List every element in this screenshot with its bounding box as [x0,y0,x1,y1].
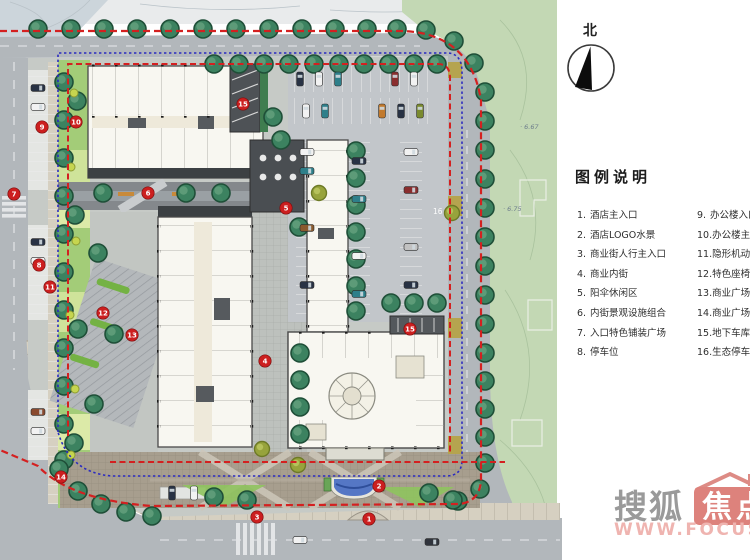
legend-item: 5.阳伞休闲区 [577,284,666,304]
legend-item: 7.入口特色铺装广场 [577,324,666,344]
svg-text:9: 9 [40,124,45,132]
legend-item: 10.办公楼主 [697,226,750,246]
watermark-focus-logo: 焦点 [690,472,750,526]
legend-item: 2.酒店LOGO水景 [577,226,666,246]
legend-item: 15.地下车库 [697,324,750,344]
legend-title: 图例说明 [575,166,750,187]
building-office-north [88,64,268,178]
svg-text:15: 15 [405,326,415,334]
legend-item: 12.特色座椅 [697,265,750,285]
svg-text:11: 11 [45,284,55,292]
legend-item: 16.生态停车 [697,343,750,363]
screenshot: 16 [0,0,750,560]
svg-text:· 6.67: · 6.67 [520,123,539,131]
legend-item: 4.商业内街 [577,265,666,285]
building-commercial-west [157,206,253,447]
legend-item: 14.商业广场 [697,304,750,324]
svg-text:12: 12 [98,310,108,318]
watermark: 搜狐 焦点 WWW.FOCUS [608,476,750,556]
svg-text:· 6.75: · 6.75 [503,205,522,213]
legend-item: 13.商业广场 [697,284,750,304]
svg-text:5: 5 [284,205,289,213]
building-hotel [288,316,444,460]
garage-ramp-hotel [390,316,444,334]
parking-area-label: 16 [433,207,443,216]
svg-text:6: 6 [146,190,151,198]
watermark-url: WWW.FOCUS [614,520,750,540]
legend-item: 1.酒店主入口 [577,206,666,226]
legend-item: 6.内街景观设施组合 [577,304,666,324]
svg-text:1: 1 [367,516,372,524]
north-label: 北 [583,23,597,39]
svg-text:2: 2 [377,483,382,491]
garage-ramp-north [230,64,268,132]
svg-text:10: 10 [71,119,81,127]
legend-item: 3.商业街人行主入口 [577,245,666,265]
svg-text:13: 13 [127,332,137,340]
legend-item: 11.隐形机动 [697,245,750,265]
north-arrow: 北 [564,12,626,104]
site-plan: 16 [0,0,562,560]
legend-panel: 图例说明 1.酒店主入口 2.酒店LOGO水景 3.商业街人行主入口 4.商业内… [575,166,750,209]
svg-text:4: 4 [263,358,268,366]
svg-text:8: 8 [37,262,42,270]
roof-terrace-umbrella [250,140,304,212]
legend-item: 9.办公楼入口 [697,206,750,226]
legend-column-left: 1.酒店主入口 2.酒店LOGO水景 3.商业街人行主入口 4.商业内街 5.阳… [577,206,666,363]
svg-text:3: 3 [255,514,260,522]
svg-text:7: 7 [12,191,17,199]
svg-text:15: 15 [238,101,248,109]
legend-item: 8.停车位 [577,343,666,363]
legend-column-right: 9.办公楼入口 10.办公楼主 11.隐形机动 12.特色座椅 13.商业广场 … [697,206,750,363]
svg-text:14: 14 [56,474,66,482]
